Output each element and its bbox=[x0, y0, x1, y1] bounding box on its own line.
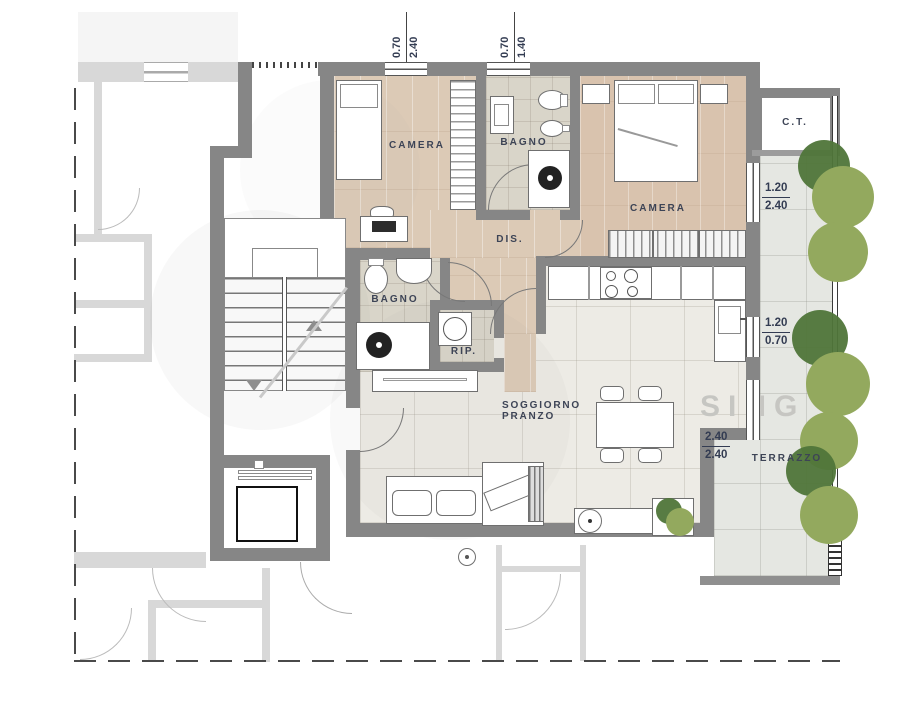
kitchen-sink bbox=[718, 306, 741, 334]
chair bbox=[638, 448, 662, 463]
wall-stair-left bbox=[210, 146, 224, 462]
elevator-counterweight bbox=[254, 460, 264, 469]
ghost-door-arc bbox=[98, 188, 140, 230]
shower-head-dot bbox=[376, 342, 382, 348]
bed-pillow bbox=[658, 84, 694, 104]
room-label-soggiorno: SOGGIORNO PRANZO bbox=[502, 400, 592, 422]
nightstand bbox=[700, 84, 728, 104]
sink-tap bbox=[740, 318, 746, 320]
window-top-1 bbox=[385, 62, 427, 76]
ghost-wall bbox=[74, 552, 206, 568]
bidet bbox=[540, 120, 564, 137]
bed-pillow bbox=[340, 84, 378, 108]
bidet-tap bbox=[562, 125, 570, 132]
stair-down-arrow bbox=[246, 380, 262, 391]
dim-value: 1.20 bbox=[762, 316, 790, 333]
chair bbox=[600, 448, 624, 463]
wall-top bbox=[427, 62, 487, 76]
ghost-wall bbox=[580, 545, 586, 661]
room-label-bagno2: BAGNO bbox=[368, 293, 422, 306]
dim-window-right-1: 1.20 2.40 bbox=[762, 181, 790, 214]
toilet-tank bbox=[368, 258, 384, 266]
window-right-2 bbox=[746, 317, 760, 357]
wall-partition bbox=[476, 76, 486, 210]
room-label-ct: C.T. bbox=[760, 116, 830, 129]
wall-stair-left bbox=[238, 62, 252, 158]
burner bbox=[627, 286, 638, 297]
bed-pillow bbox=[618, 84, 655, 104]
wall-stub bbox=[536, 256, 546, 334]
elevator-door-rail bbox=[238, 470, 312, 474]
ghost-wall bbox=[148, 608, 156, 662]
laptop bbox=[372, 221, 396, 232]
stair-vent-grate bbox=[252, 62, 318, 75]
sofa-cushion bbox=[392, 490, 432, 516]
ghost-block-top bbox=[78, 12, 238, 62]
shower-head-dot bbox=[547, 175, 553, 181]
elevator-car bbox=[236, 486, 298, 542]
ghost-door-arc bbox=[300, 562, 352, 614]
wardrobe bbox=[450, 80, 476, 210]
dim-window-right-2: 1.20 0.70 bbox=[762, 316, 790, 349]
dim-top2-width: 0.70 bbox=[499, 14, 511, 58]
counter-division bbox=[680, 266, 682, 300]
dim-top2-height: 1.40 bbox=[516, 14, 528, 58]
terrace-door bbox=[746, 380, 760, 440]
speaker-dot bbox=[588, 519, 592, 523]
ghost-door-arc bbox=[505, 574, 561, 630]
chaise-screen bbox=[528, 466, 544, 522]
dim-value: 2.40 bbox=[702, 447, 730, 463]
ghost-door-arc bbox=[80, 608, 132, 660]
toilet bbox=[364, 264, 388, 294]
washing-machine-drum bbox=[443, 317, 467, 341]
wall-ct bbox=[752, 88, 840, 98]
burner bbox=[624, 269, 638, 283]
wall-partition bbox=[570, 76, 580, 218]
room-label-dis: DIS. bbox=[488, 233, 532, 246]
wall-right bbox=[746, 222, 760, 317]
sideboard-line bbox=[383, 378, 467, 381]
nightstand bbox=[582, 84, 610, 104]
elevator-door-rail bbox=[238, 476, 312, 480]
terrace-bottom-wall bbox=[700, 576, 840, 585]
ghost-wall bbox=[144, 242, 152, 360]
dim-value: 1.20 bbox=[762, 181, 790, 198]
wall-top bbox=[530, 62, 760, 76]
floor-symbol-dot bbox=[465, 555, 469, 559]
dim-value: 2.40 bbox=[702, 430, 730, 447]
ghost-window bbox=[144, 62, 188, 82]
wardrobe-hanging bbox=[608, 230, 746, 258]
stair-landing-inner bbox=[252, 248, 318, 278]
room-label-rip: RIP. bbox=[442, 345, 486, 358]
floor-disimpegno bbox=[504, 334, 536, 392]
toilet-tank bbox=[560, 94, 568, 107]
room-label-terrazzo: TERRAZZO bbox=[748, 452, 826, 465]
wall-bagno1-bottom bbox=[560, 210, 580, 220]
dim-tick bbox=[406, 12, 407, 62]
chair bbox=[638, 386, 662, 401]
tree bbox=[806, 352, 870, 416]
ghost-wall bbox=[74, 234, 152, 242]
sofa-cushion bbox=[436, 490, 476, 516]
counter-division bbox=[712, 266, 714, 300]
dim-top1-height: 2.40 bbox=[408, 14, 420, 58]
dim-value: 2.40 bbox=[762, 198, 790, 214]
wall-right bbox=[746, 357, 760, 380]
chair bbox=[600, 386, 624, 401]
sideboard bbox=[372, 370, 478, 392]
dim-top1-width: 0.70 bbox=[391, 14, 403, 58]
ghost-door-arc bbox=[152, 568, 206, 622]
sink-basin bbox=[494, 104, 509, 126]
room-label-camera1: CAMERA bbox=[386, 139, 448, 152]
wall-bagno1-bottom bbox=[476, 210, 530, 220]
soggiorno-line1: SOGGIORNO bbox=[502, 400, 592, 411]
dim-tick bbox=[514, 12, 515, 62]
boundary-dashed-bottom bbox=[74, 660, 840, 662]
stair-divider bbox=[282, 277, 287, 391]
ghost-wall bbox=[496, 545, 502, 661]
tree bbox=[812, 166, 874, 228]
plant-indoor bbox=[666, 508, 694, 536]
ghost-wall bbox=[74, 300, 152, 308]
wardrobe-divider bbox=[698, 230, 700, 258]
ghost-wall bbox=[502, 566, 580, 572]
sink-halfround bbox=[396, 258, 432, 284]
boundary-dashed-left bbox=[74, 88, 76, 662]
ghost-wall bbox=[74, 354, 152, 362]
ghost-wall bbox=[262, 568, 270, 662]
room-label-bagno1: BAGNO bbox=[496, 136, 552, 149]
window-right-1 bbox=[746, 163, 760, 222]
soggiorno-line2: PRANZO bbox=[502, 411, 592, 422]
wardrobe-divider bbox=[652, 230, 654, 258]
dim-terrace-door: 2.40 2.40 bbox=[702, 430, 730, 463]
dining-table bbox=[596, 402, 674, 448]
burner bbox=[605, 285, 618, 298]
window-top-2 bbox=[487, 62, 530, 76]
room-label-camera2: CAMERA bbox=[622, 202, 694, 215]
floor-plan: SING bbox=[0, 0, 920, 720]
dim-value: 0.70 bbox=[762, 333, 790, 349]
tree bbox=[808, 222, 868, 282]
counter-division bbox=[588, 266, 590, 300]
burner bbox=[606, 271, 616, 281]
tree bbox=[800, 486, 858, 544]
